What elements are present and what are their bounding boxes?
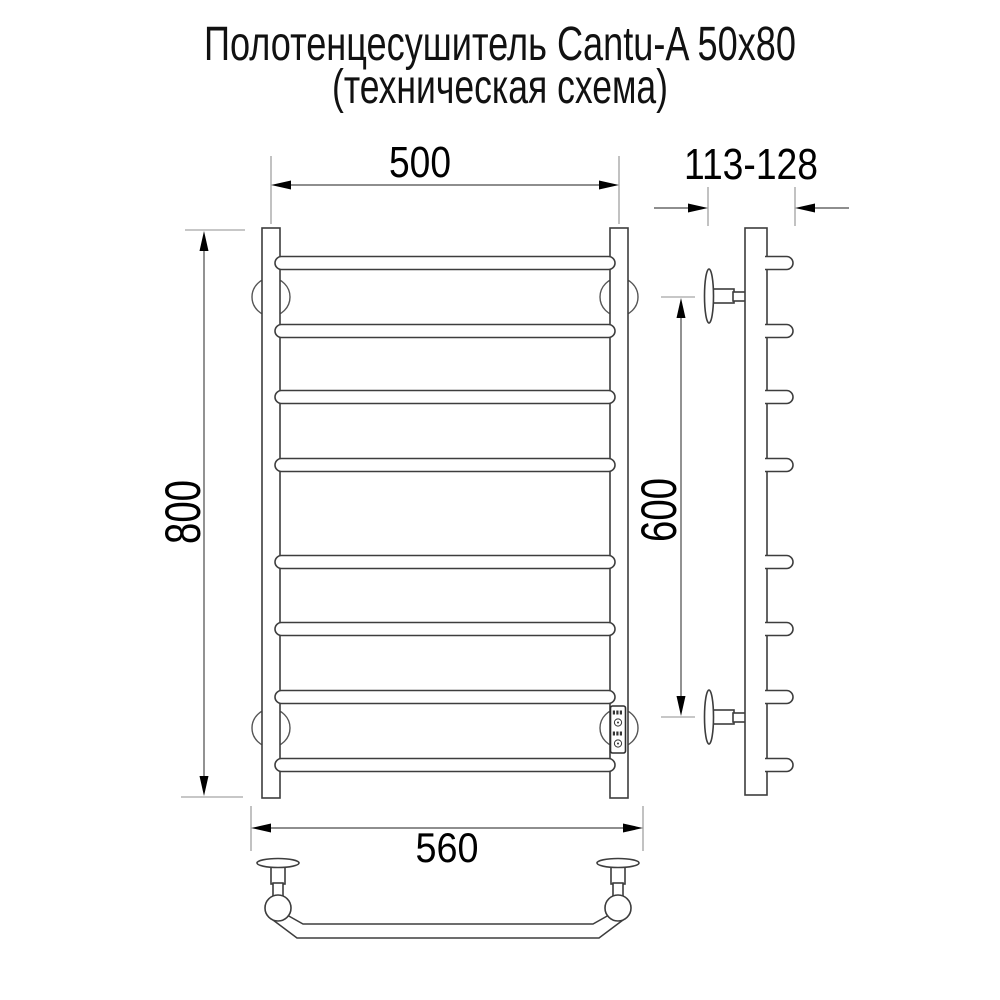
panel-button-dot [617, 743, 619, 745]
rung-5 [275, 556, 615, 569]
rung-7 [275, 691, 615, 704]
side-rung-3 [765, 391, 793, 404]
tube-top-edge [287, 915, 609, 924]
side-rung-2 [765, 325, 793, 338]
side-rung-1 [765, 257, 793, 270]
arrowhead-up [200, 231, 209, 251]
panel-mark [620, 711, 622, 715]
panel-mark [616, 711, 618, 715]
dim-label-mount-spacing: 600 [631, 478, 687, 542]
wall-flange-right [597, 859, 639, 868]
wall-bracket-top [705, 269, 747, 323]
bracket-stem [712, 289, 734, 303]
panel-mark [616, 732, 618, 736]
rung-2 [275, 325, 615, 338]
arrowhead-right-in [688, 204, 708, 213]
arrowhead-left [271, 181, 291, 190]
arrowhead-left [251, 824, 271, 833]
side-rung-8 [765, 759, 793, 772]
bracket-collar [733, 292, 746, 301]
arrowhead-left-in [795, 204, 815, 213]
dim-label-width: 500 [389, 138, 451, 187]
corner-ball-left [265, 895, 291, 921]
front-view [252, 228, 638, 798]
mount-stem-right [611, 866, 625, 884]
arrowhead-down [677, 696, 686, 716]
dim-label-bottom-width: 560 [416, 824, 479, 871]
arrowhead-up [677, 298, 686, 318]
technical-drawing: Полотенцесушитель Cantu-A 50x80 (техниче… [0, 0, 1000, 1000]
page-subtitle: (техническая схема) [332, 61, 668, 114]
wall-flange-left [257, 859, 299, 868]
mount-collar-right [613, 883, 623, 896]
side-rung-4 [765, 459, 793, 472]
title-block: Полотенцесушитель Cantu-A 50x80 (техниче… [204, 18, 796, 114]
side-rung-6 [765, 623, 793, 636]
panel-button-dot [617, 722, 619, 724]
dim-mount-spacing: 600 [631, 297, 695, 717]
dim-overall-width: 500 [271, 138, 619, 224]
control-panel [611, 706, 626, 753]
dim-bottom-width: 560 [251, 806, 643, 871]
side-rung-7 [765, 691, 793, 704]
arrowhead-down [200, 776, 209, 796]
panel-mark [613, 732, 615, 736]
dim-label-depth: 113-128 [684, 140, 818, 189]
dim-label-height: 800 [155, 480, 211, 544]
wall-bracket-bottom [705, 690, 747, 744]
rung-6 [275, 623, 615, 636]
bracket-flange [705, 269, 714, 323]
bracket-flange [705, 690, 714, 744]
rung-4 [275, 459, 615, 472]
panel-mark [620, 732, 622, 736]
bracket-stem [712, 710, 734, 724]
side-view [705, 228, 794, 795]
dim-overall-height: 800 [155, 230, 245, 797]
rung-1 [275, 257, 615, 270]
panel-mark [613, 711, 615, 715]
arrowhead-right [623, 824, 643, 833]
arrowhead-right [599, 181, 619, 190]
tube-bottom-edge [273, 920, 623, 938]
rung-3 [275, 391, 615, 404]
left-post [262, 228, 280, 798]
mount-stem-left [271, 866, 285, 884]
bracket-collar [733, 713, 746, 722]
corner-ball-right [605, 895, 631, 921]
side-post [745, 228, 767, 795]
side-rung-5 [765, 556, 793, 569]
dim-depth: 113-128 [654, 140, 849, 226]
mount-collar-left [273, 883, 283, 896]
rung-8 [275, 759, 615, 772]
